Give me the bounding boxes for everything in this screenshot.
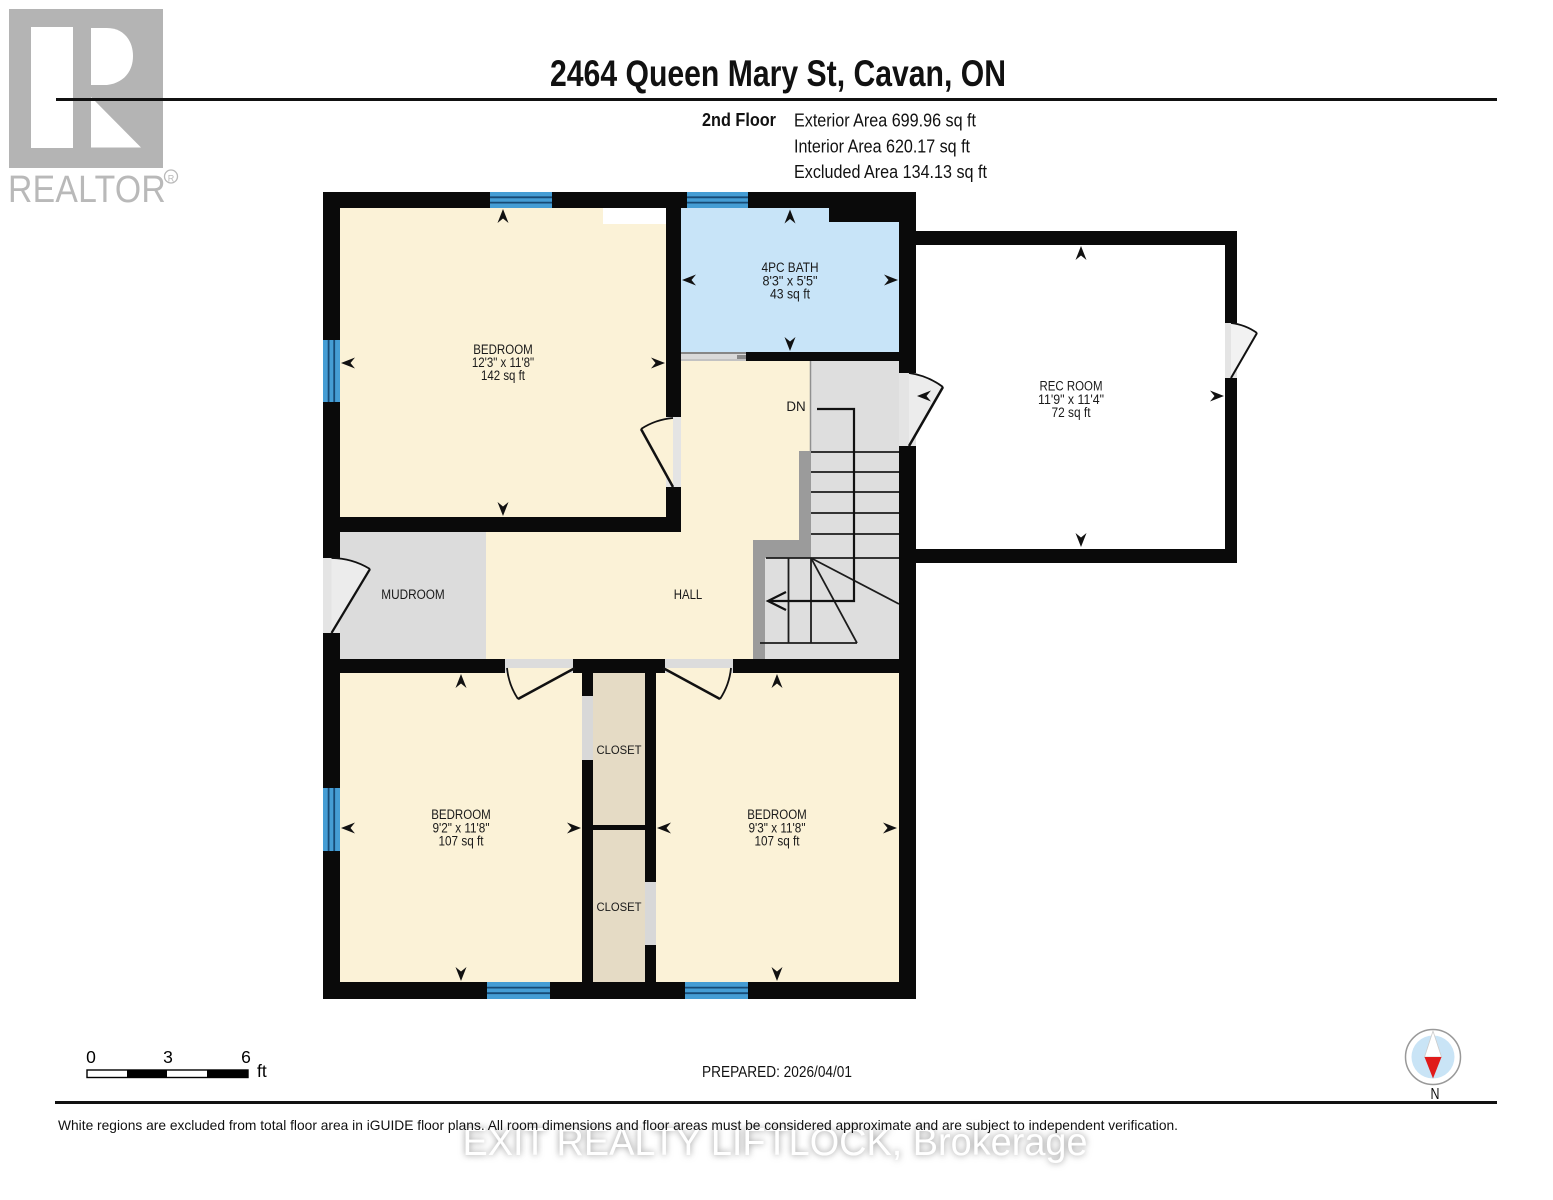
svg-text:43 sq ft: 43 sq ft — [770, 287, 810, 302]
svg-text:CLOSET: CLOSET — [597, 900, 643, 914]
svg-text:DN: DN — [786, 399, 805, 414]
svg-text:R: R — [168, 174, 175, 184]
svg-text:PREPARED: 2026/04/01: PREPARED: 2026/04/01 — [702, 1064, 852, 1081]
svg-text:2464 Queen Mary St, Cavan, ON: 2464 Queen Mary St, Cavan, ON — [550, 52, 1006, 94]
svg-text:2nd Floor: 2nd Floor — [702, 110, 776, 130]
svg-text:N: N — [1431, 1086, 1440, 1103]
svg-text:Exterior Area 699.96 sq ft: Exterior Area 699.96 sq ft — [794, 111, 976, 131]
svg-text:HALL: HALL — [674, 587, 703, 602]
svg-text:CLOSET: CLOSET — [597, 743, 643, 757]
svg-text:Excluded Area 134.13 sq ft: Excluded Area 134.13 sq ft — [794, 162, 987, 182]
svg-text:MUDROOM: MUDROOM — [381, 587, 445, 602]
svg-text:0: 0 — [86, 1047, 96, 1067]
svg-text:ft: ft — [257, 1061, 267, 1081]
svg-text:3: 3 — [163, 1047, 173, 1067]
svg-text:107 sq ft: 107 sq ft — [439, 834, 484, 849]
svg-text:72 sq ft: 72 sq ft — [1052, 405, 1091, 420]
svg-text:Interior Area 620.17 sq ft: Interior Area 620.17 sq ft — [794, 136, 970, 156]
svg-text:6: 6 — [241, 1047, 251, 1067]
svg-text:REALTOR: REALTOR — [8, 169, 166, 211]
svg-text:White regions are excluded fro: White regions are excluded from total fl… — [58, 1118, 1178, 1133]
svg-text:142 sq ft: 142 sq ft — [481, 368, 525, 383]
svg-text:107 sq ft: 107 sq ft — [755, 834, 800, 849]
